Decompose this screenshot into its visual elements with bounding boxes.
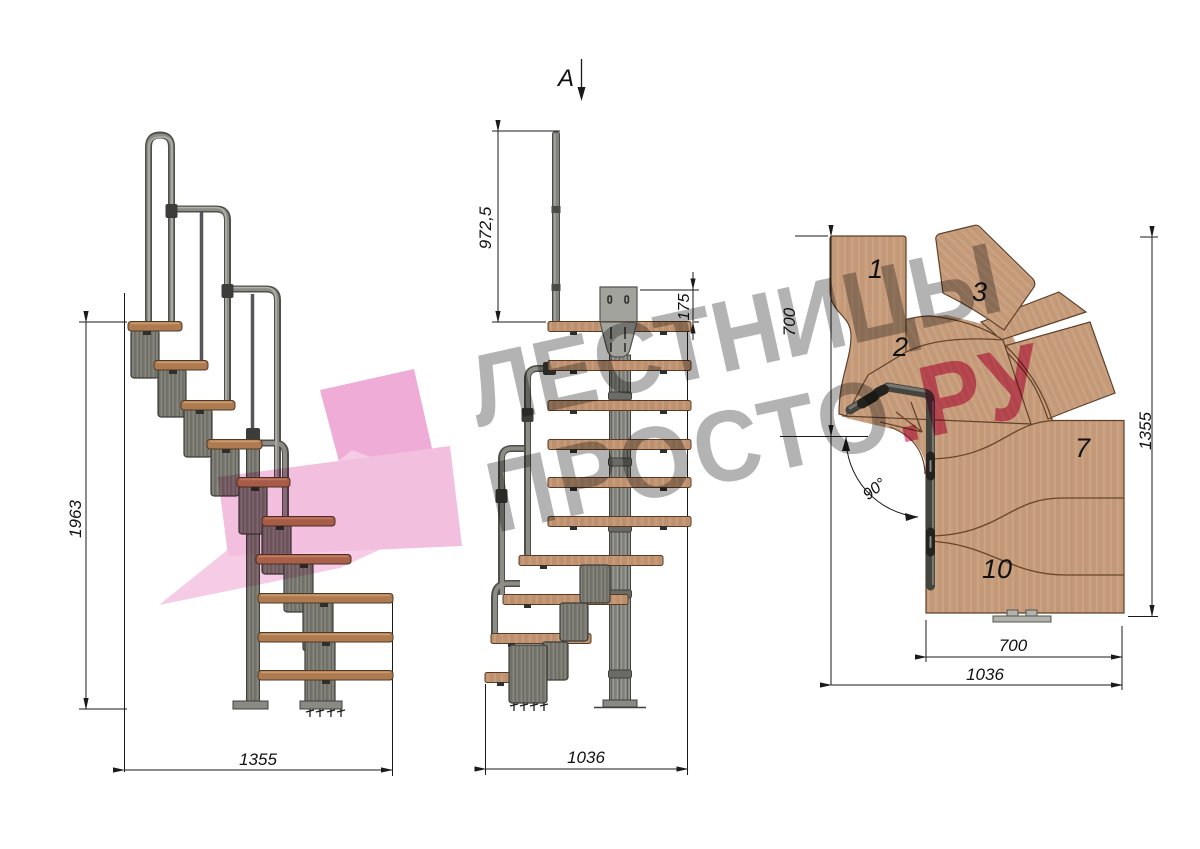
svg-text:10: 10: [982, 554, 1012, 584]
svg-text:A: A: [556, 65, 574, 92]
svg-text:90°: 90°: [860, 475, 890, 504]
svg-text:700: 700: [999, 636, 1028, 655]
svg-text:1355: 1355: [239, 750, 277, 769]
svg-text:1036: 1036: [966, 665, 1004, 684]
svg-text:972,5: 972,5: [476, 206, 495, 249]
svg-text:1036: 1036: [567, 748, 605, 767]
svg-text:7: 7: [1075, 433, 1091, 463]
svg-text:1355: 1355: [1136, 412, 1155, 450]
svg-text:1963: 1963: [66, 500, 85, 538]
